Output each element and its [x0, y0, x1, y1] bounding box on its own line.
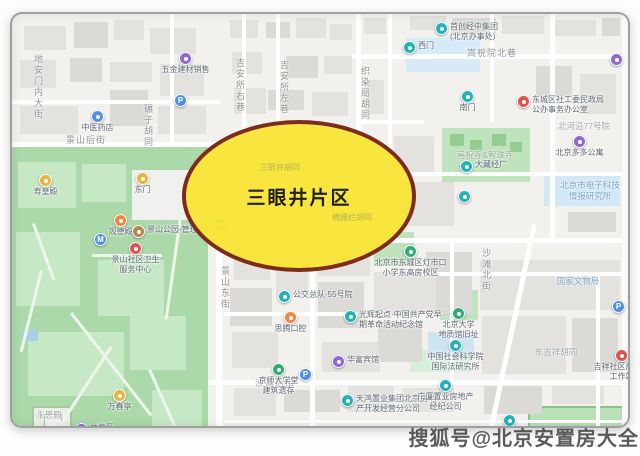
poi-marker[interactable]: M	[94, 233, 107, 246]
area-label: 北河沿77号院	[553, 121, 615, 132]
poi-marker[interactable]: 北京多多公寓	[573, 135, 586, 148]
poi-marker[interactable]: 光辉起点·中国共产党早 期革命活动纪念馆	[344, 310, 357, 323]
poi-marker[interactable]: 思腾口腔	[284, 311, 297, 324]
poi-marker[interactable]: 南门	[461, 90, 474, 103]
poi-icon: P	[612, 300, 625, 313]
poi-marker[interactable]: 吉祥社区居委会 工作站	[615, 349, 628, 362]
poi-icon	[179, 52, 192, 65]
poi-label: 东门	[132, 185, 154, 195]
poi-icon	[403, 41, 416, 54]
poi-label: 吉祥社区居委会 工作站	[593, 362, 631, 382]
poi-label: 东城区社工委民政局 公办事务办公室	[532, 95, 612, 115]
poi-marker[interactable]: P	[299, 368, 312, 381]
poi-marker[interactable]: 广厦置业房地产 经纪公司	[439, 379, 452, 392]
poi-marker[interactable]: 东门	[136, 172, 149, 185]
poi-icon	[344, 310, 357, 323]
poi-label: 中医药店	[78, 123, 118, 133]
poi-marker[interactable]: 天鸿置业集团北京房地 产开发经营分公司	[341, 394, 354, 407]
poi-label: 思腾口腔	[272, 324, 310, 334]
poi-marker[interactable]: 华富宾馆	[332, 355, 345, 368]
poi-icon	[136, 172, 149, 185]
poi-icon	[458, 190, 471, 203]
poi-icon: P	[299, 368, 312, 381]
street-label: 织染局胡同	[359, 66, 372, 121]
poi-icon	[284, 311, 297, 324]
poi-icon	[132, 225, 145, 238]
poi-marker[interactable]: 北京市东城区灯市口 小学东高房校区	[404, 245, 417, 258]
poi-marker[interactable]: 首创经中集团 (北京办事处)	[435, 22, 448, 35]
poi-icon	[91, 110, 104, 123]
area-label: 北京市电子科技 情报研究所	[552, 180, 628, 201]
poi-icon	[278, 290, 291, 303]
poi-icon	[610, 53, 623, 66]
poi-marker[interactable]: 万春亭	[113, 389, 126, 402]
poi-icon	[113, 389, 126, 402]
poi-icon	[435, 22, 448, 35]
poi-label: 万春亭	[105, 402, 135, 412]
street-label: 北河沿大街	[628, 102, 630, 157]
poi-icon	[461, 90, 474, 103]
poi-icon	[332, 355, 345, 368]
poi-label: 首创经中集团 (北京办事处)	[450, 22, 510, 42]
street-label: 景山后街	[66, 133, 106, 146]
poi-marker[interactable]: 景山社区卫生 服务中心	[129, 242, 142, 255]
highlight-label: 三眼井片区	[246, 183, 351, 210]
street-label: 碾子胡同	[142, 104, 155, 148]
poi-marker[interactable]: P	[174, 94, 187, 107]
poi-marker[interactable]: 观德殿	[114, 214, 127, 227]
poi-marker[interactable]	[458, 190, 471, 203]
poi-label: 大藏经厂	[475, 160, 513, 170]
poi-marker[interactable]	[610, 53, 623, 66]
street-label: 吉安所左巷	[278, 60, 291, 115]
poi-icon	[272, 363, 285, 376]
street-label: 沙滩北街	[480, 248, 493, 292]
street-label: 地安门内大街	[32, 54, 45, 120]
poi-label: 观德殿	[106, 227, 136, 237]
poi-marker[interactable]: 中医药店	[91, 110, 104, 123]
poi-icon: P	[174, 94, 187, 107]
poi-marker[interactable]: 西门	[403, 41, 416, 54]
poi-icon	[452, 307, 465, 320]
poi-label: 西门	[418, 41, 438, 51]
poi-marker[interactable]: 公交总队·55号院	[278, 290, 291, 303]
street-label: 嵩祝院北巷	[467, 46, 517, 59]
highlight-ellipse: 三眼井片区	[182, 120, 416, 272]
poi-label: 中国社会科学院 国际法研究所	[424, 352, 488, 372]
area-label: 东吉祥胡同	[528, 347, 584, 358]
poi-label: 北京大学 地质馆旧址	[437, 320, 481, 340]
poi-icon	[439, 379, 452, 392]
poi-icon	[39, 174, 52, 187]
poi-icon	[341, 394, 354, 407]
poi-marker[interactable]: 五金建材销售	[179, 52, 192, 65]
poi-label: 五金建材销售	[159, 65, 213, 75]
poi-marker[interactable]: 京师大学堂 建筑遗存	[272, 363, 285, 376]
poi-label: 公交总队·55号院	[293, 290, 373, 300]
ghost-label: 横栅栏胡同	[332, 212, 372, 223]
poi-marker[interactable]: 大藏经厂	[460, 160, 473, 173]
poi-marker[interactable]: 东城区社工委民政局 公办事务办公室	[517, 95, 530, 108]
map-image[interactable]: 地安门内大街景山后街吉安所右巷吉安所左巷碾子胡同织染局胡同嵩祝院北巷景山东街北河…	[10, 12, 630, 428]
street-label: 景山东街	[219, 266, 232, 310]
poi-label: 寿皇殿	[31, 187, 61, 197]
poi-icon	[460, 160, 473, 173]
poi-icon	[573, 135, 586, 148]
poi-icon	[449, 339, 462, 352]
poi-label: 京师大学堂 建筑遗存	[255, 376, 303, 396]
poi-icon	[517, 95, 530, 108]
street-label: 北河沿大街	[628, 364, 630, 419]
area-label: 永思殿	[34, 410, 64, 421]
street-label: 吉安所右巷	[234, 58, 247, 113]
poi-marker[interactable]: 中国社会科学院 国际法研究所	[449, 339, 462, 352]
poi-label: 广厦置业房地产 经纪公司	[414, 392, 478, 412]
poi-label: 北京市东城区灯市口 小学东高房校区	[369, 258, 453, 278]
poi-label: 景山社区卫生 服务中心	[110, 255, 162, 275]
poi-marker[interactable]: 景山公园-管理处	[132, 225, 145, 238]
poi-label: 华富宾馆	[347, 355, 387, 365]
poi-icon	[129, 242, 142, 255]
poi-icon	[615, 349, 628, 362]
poi-label: 北京多多公寓	[552, 148, 608, 158]
poi-marker[interactable]: 北京大学 地质馆旧址	[452, 307, 465, 320]
area-label: 国家文物局	[546, 276, 610, 287]
poi-label: 休息区	[90, 423, 118, 428]
poi-marker[interactable]: 寿皇殿	[39, 174, 52, 187]
poi-label: 南门	[458, 103, 478, 113]
poi-marker[interactable]: P	[612, 300, 625, 313]
poi-icon	[404, 245, 417, 258]
poi-icon	[114, 214, 127, 227]
watermark-text: 搜狐号@北京安置房大全	[408, 422, 639, 451]
poi-marker[interactable]: 休息区	[75, 423, 88, 428]
poi-icon	[75, 423, 88, 428]
ghost-label: 三眼井胡同	[260, 162, 300, 173]
poi-icon: M	[94, 233, 107, 246]
